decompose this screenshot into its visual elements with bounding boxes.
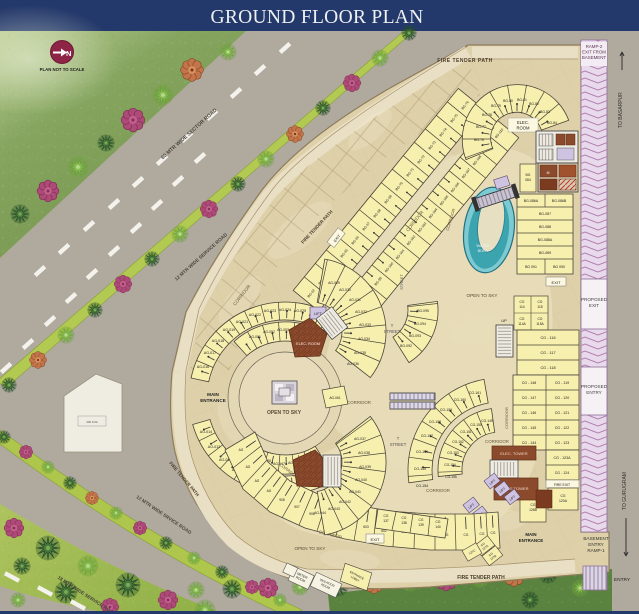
svg-text:AG-019: AG-019 [223, 328, 235, 332]
svg-text:EXIT FROM: EXIT FROM [582, 50, 606, 55]
svg-text:CG - 123A: CG - 123A [554, 456, 572, 460]
svg-text:AG-041: AG-041 [349, 490, 361, 494]
svg-text:CORRIDOR: CORRIDOR [347, 400, 371, 405]
svg-text:AG-032: AG-032 [355, 310, 367, 314]
svg-text:BG-76: BG-76 [474, 138, 484, 142]
svg-text:GROUND FLOOR PLAN: GROUND FLOOR PLAN [210, 7, 423, 28]
svg-text:BG-089: BG-089 [539, 251, 551, 255]
svg-text:AG-016: AG-016 [197, 365, 209, 369]
svg-text:BG-79: BG-79 [491, 104, 501, 108]
svg-text:CG-161: CG-161 [469, 391, 481, 395]
svg-text:ENTRY: ENTRY [586, 390, 602, 395]
svg-text:CG - 117: CG - 117 [540, 351, 555, 355]
svg-text:FIRE TENDER PATH: FIRE TENDER PATH [457, 575, 505, 581]
svg-text:AG-036: AG-036 [347, 362, 359, 366]
svg-text:M: M [547, 171, 550, 175]
svg-text:BG-84: BG-84 [547, 121, 557, 125]
svg-text:CG-158: CG-158 [429, 420, 441, 424]
svg-text:AG-029: AG-029 [328, 281, 340, 285]
svg-text:BG 091: BG 091 [525, 265, 537, 269]
svg-text:OPEN TO SKY: OPEN TO SKY [295, 546, 326, 551]
svg-text:T: T [397, 436, 400, 441]
svg-text:139: 139 [418, 523, 424, 527]
svg-text:CG-157: CG-157 [421, 434, 433, 438]
svg-text:AG-014: AG-014 [200, 430, 212, 434]
svg-text:BG-095: BG-095 [417, 309, 429, 313]
svg-text:TO GURUGRAM: TO GURUGRAM [622, 472, 628, 510]
svg-text:STREET: STREET [390, 442, 407, 447]
svg-text:TO BASARPUR: TO BASARPUR [618, 92, 624, 128]
svg-text:137: 137 [383, 519, 389, 523]
svg-text:AG: AG [239, 448, 244, 452]
svg-text:AG-053: AG-053 [277, 328, 289, 332]
svg-text:BG-78: BG-78 [482, 113, 492, 117]
svg-text:BODY: BODY [478, 249, 489, 253]
svg-text:CG - 116: CG - 116 [540, 336, 555, 340]
svg-text:AG-023: AG-023 [264, 309, 276, 313]
svg-text:CG - 145: CG - 145 [522, 426, 537, 430]
svg-text:CG: CG [436, 520, 441, 524]
svg-text:CG - 119: CG - 119 [555, 381, 569, 385]
svg-text:400 KVA: 400 KVA [86, 420, 98, 424]
svg-text:CG: CG [402, 516, 407, 520]
svg-text:BG-088A: BG-088A [538, 238, 553, 242]
svg-text:BASEMENT: BASEMENT [582, 55, 606, 60]
svg-text:ELEC. TOWER: ELEC. TOWER [500, 451, 528, 456]
svg-text:ENTRY: ENTRY [588, 542, 604, 547]
svg-text:CG: CG [419, 518, 424, 522]
svg-text:CG-150: CG-150 [470, 423, 482, 427]
svg-text:CG - 122: CG - 122 [555, 426, 570, 430]
svg-text:CORRIDOR: CORRIDOR [485, 439, 509, 444]
svg-text:AG-018: AG-018 [212, 339, 224, 343]
svg-text:CG - 123: CG - 123 [555, 441, 570, 445]
svg-text:BG-81: BG-81 [517, 98, 527, 102]
svg-text:CG-153: CG-153 [447, 451, 459, 455]
svg-text:CG - 146: CG - 146 [522, 411, 537, 415]
svg-text:AG-043: AG-043 [328, 507, 340, 511]
svg-text:CG: CG [464, 533, 469, 537]
svg-text:EXIT: EXIT [589, 303, 599, 308]
svg-text:AG-022: AG-022 [249, 313, 261, 317]
svg-text:RAMP-1: RAMP-1 [587, 548, 605, 553]
svg-text:BG-093: BG-093 [409, 334, 421, 338]
svg-text:RAMP-2: RAMP-2 [586, 44, 603, 49]
svg-text:CG: CG [531, 503, 536, 507]
svg-text:ROOM: ROOM [516, 126, 530, 131]
svg-text:PROPOSED: PROPOSED [581, 297, 608, 302]
svg-text:CG: CG [538, 317, 543, 321]
svg-text:CG - 124: CG - 124 [555, 471, 570, 475]
svg-text:AG: AG [267, 489, 272, 493]
svg-text:603: 603 [363, 525, 369, 529]
svg-text:BG: BG [526, 173, 531, 177]
svg-text:BASEMENT: BASEMENT [583, 536, 608, 541]
svg-text:CORRIDOR: CORRIDOR [504, 407, 509, 429]
svg-text:BG 090: BG 090 [553, 265, 565, 269]
svg-text:AG-031: AG-031 [349, 298, 361, 302]
svg-text:CG-155: CG-155 [445, 475, 457, 479]
svg-text:EXIT: EXIT [371, 537, 380, 542]
svg-text:126B: 126B [529, 508, 538, 512]
svg-text:907: 907 [294, 505, 300, 509]
svg-text:AG-035: AG-035 [354, 351, 366, 355]
svg-text:CG-154: CG-154 [444, 463, 456, 467]
svg-text:CG: CG [480, 532, 485, 536]
svg-text:ENTRY: ENTRY [614, 577, 631, 583]
svg-text:CG - 121: CG - 121 [555, 411, 570, 415]
svg-text:BG-086B: BG-086B [552, 199, 567, 203]
svg-text:BG-77: BG-77 [476, 125, 486, 129]
svg-text:CG: CG [538, 300, 543, 304]
svg-text:Y: Y [391, 323, 394, 328]
svg-text:CG: CG [520, 300, 525, 304]
svg-text:138: 138 [401, 521, 407, 525]
svg-text:AG-042: AG-042 [339, 500, 351, 504]
svg-text:AG-033: AG-033 [359, 323, 371, 327]
svg-text:BG-088: BG-088 [539, 225, 551, 229]
svg-text:CG - 144: CG - 144 [522, 441, 537, 445]
svg-text:CG-159: CG-159 [440, 408, 452, 412]
svg-text:OPEN TO SKY: OPEN TO SKY [467, 293, 498, 298]
svg-text:FIRE TENDER PATH: FIRE TENDER PATH [437, 58, 493, 64]
svg-text:AG-025: AG-025 [294, 309, 306, 313]
svg-text:STREET: STREET [384, 329, 401, 334]
svg-text:CG-155: CG-155 [414, 467, 426, 471]
svg-text:CG - 148: CG - 148 [522, 381, 537, 385]
svg-text:PROPOSED: PROPOSED [581, 384, 608, 389]
svg-text:CG-149: CG-149 [481, 419, 493, 423]
svg-text:115A: 115A [536, 322, 544, 326]
svg-text:908: 908 [279, 498, 285, 502]
svg-text:OPEN TO SKY: OPEN TO SKY [267, 410, 302, 416]
svg-text:ENTRANCE: ENTRANCE [200, 398, 226, 403]
svg-text:STREET: STREET [399, 274, 404, 290]
svg-text:115: 115 [537, 305, 542, 309]
svg-text:AG-034: AG-034 [358, 337, 370, 341]
svg-text:CG: CG [491, 531, 496, 535]
svg-text:140: 140 [435, 525, 441, 529]
svg-text:114: 114 [519, 305, 524, 309]
svg-text:BG-094: BG-094 [414, 322, 426, 326]
svg-text:ELEC. ROOM: ELEC. ROOM [296, 342, 320, 346]
svg-text:BG-087: BG-087 [539, 212, 551, 216]
svg-text:CG - 118: CG - 118 [540, 366, 555, 370]
svg-text:CG-160: CG-160 [454, 398, 466, 402]
svg-text:ELEC.: ELEC. [517, 120, 529, 125]
svg-text:114A: 114A [518, 322, 526, 326]
svg-text:AG-040: AG-040 [355, 478, 367, 482]
svg-text:AG-044: AG-044 [314, 511, 326, 515]
svg-text:CG-151: CG-151 [460, 430, 472, 434]
svg-text:EXIT: EXIT [552, 280, 561, 285]
svg-text:MAIN: MAIN [525, 532, 536, 537]
svg-text:ENTRANCE: ENTRANCE [519, 538, 543, 543]
svg-text:MAIN: MAIN [207, 392, 219, 397]
svg-text:WATER: WATER [476, 244, 490, 248]
svg-text:AG-052: AG-052 [263, 330, 275, 334]
svg-text:AG: AG [246, 465, 251, 469]
svg-text:AG-012: AG-012 [208, 445, 220, 449]
svg-text:CG: CG [560, 494, 565, 498]
svg-text:084: 084 [525, 178, 531, 182]
svg-text:AG-061: AG-061 [329, 396, 341, 400]
svg-text:FIRE EXIT: FIRE EXIT [554, 483, 570, 487]
svg-text:N: N [66, 49, 71, 58]
svg-text:BG-086A: BG-086A [524, 199, 539, 203]
svg-text:AG: AG [255, 479, 260, 483]
svg-text:PLAN NOT TO SCALE: PLAN NOT TO SCALE [40, 67, 85, 72]
svg-text:AG-039: AG-039 [359, 465, 371, 469]
svg-text:CG-152: CG-152 [452, 440, 464, 444]
svg-text:BG-82: BG-82 [529, 102, 539, 106]
svg-text:BG-80: BG-80 [503, 99, 513, 103]
svg-text:CG-156: CG-156 [416, 450, 428, 454]
svg-text:CG: CG [384, 514, 389, 518]
svg-text:CORRIDOR: CORRIDOR [426, 488, 450, 493]
svg-text:AG-051: AG-051 [249, 335, 261, 339]
svg-text:CG - 147: CG - 147 [522, 396, 537, 400]
svg-text:AG-038: AG-038 [358, 451, 370, 455]
svg-text:BG-092: BG-092 [400, 344, 412, 348]
svg-text:AG-021: AG-021 [236, 320, 248, 324]
svg-text:AG-037: AG-037 [354, 437, 366, 441]
svg-text:AG-024: AG-024 [279, 308, 291, 312]
svg-text:CG: CG [520, 317, 525, 321]
svg-text:UP: UP [501, 318, 507, 323]
svg-text:BG-83: BG-83 [540, 110, 550, 114]
svg-text:CG - 120: CG - 120 [555, 396, 570, 400]
svg-text:AG-030: AG-030 [339, 288, 351, 292]
svg-text:120A: 120A [559, 499, 568, 503]
svg-text:AG-017: AG-017 [204, 351, 216, 355]
